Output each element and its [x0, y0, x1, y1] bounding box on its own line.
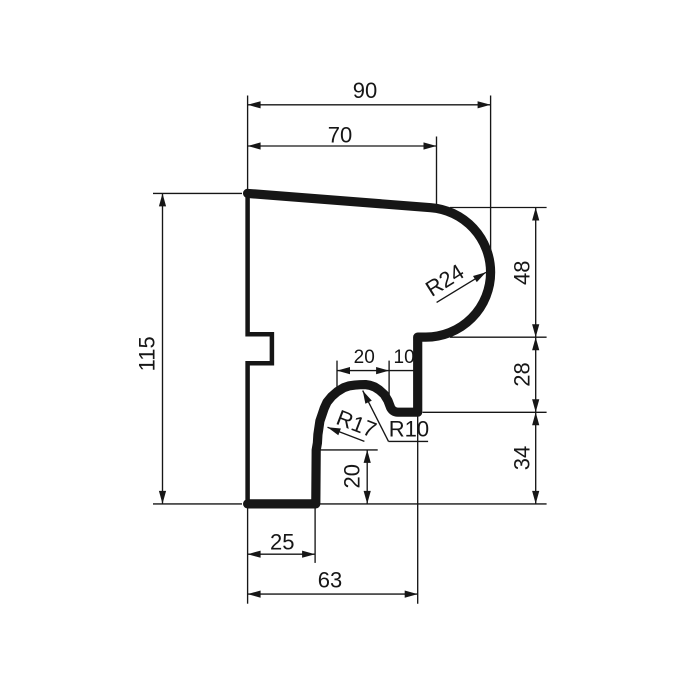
svg-text:25: 25: [270, 530, 294, 555]
svg-text:115: 115: [135, 336, 160, 371]
svg-text:20: 20: [354, 347, 375, 368]
svg-text:10: 10: [394, 347, 415, 368]
svg-text:R10: R10: [389, 417, 429, 442]
svg-text:48: 48: [510, 261, 535, 285]
svg-text:34: 34: [510, 446, 535, 470]
svg-text:28: 28: [510, 362, 535, 386]
svg-text:70: 70: [328, 122, 352, 147]
svg-text:20: 20: [340, 464, 365, 488]
svg-text:90: 90: [353, 78, 377, 103]
svg-text:63: 63: [318, 567, 342, 592]
